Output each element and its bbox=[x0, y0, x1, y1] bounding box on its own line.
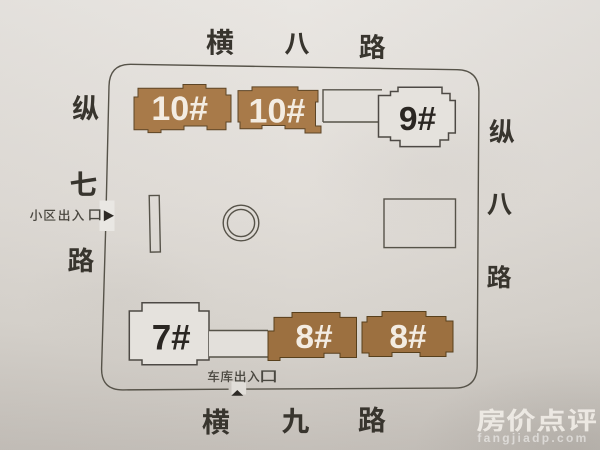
svg-text:10#: 10# bbox=[249, 93, 306, 131]
svg-text:8#: 8# bbox=[389, 319, 427, 356]
svg-text:9#: 9# bbox=[399, 101, 437, 138]
svg-text:7#: 7# bbox=[152, 319, 191, 358]
svg-text:10#: 10# bbox=[151, 90, 208, 128]
svg-text:fangjiadp.com: fangjiadp.com bbox=[477, 431, 588, 445]
svg-text:8#: 8# bbox=[295, 319, 333, 356]
